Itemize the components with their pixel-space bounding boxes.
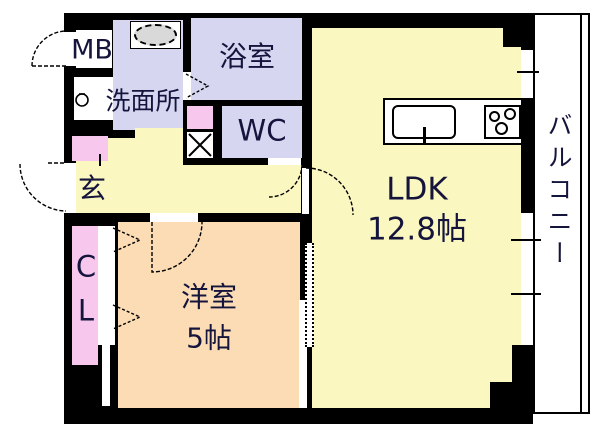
- balcony-rail-line: [580, 15, 582, 412]
- yoshitsu-door-opening: [150, 213, 198, 222]
- mb-label: MB: [71, 37, 113, 64]
- closet-door-track: [98, 226, 115, 345]
- pink-cabinet: [187, 106, 213, 129]
- wc-label: WC: [238, 117, 287, 146]
- closet-label-c: C: [76, 250, 96, 284]
- stove-icon: [484, 105, 521, 139]
- senmenjo-label: 洗面所: [105, 89, 180, 114]
- entrance-door-swing-icon: [20, 163, 66, 211]
- pipe-space: [187, 132, 213, 158]
- balcony-label: バルコニー: [543, 112, 573, 312]
- yokushitsu-label: 浴室: [219, 43, 275, 71]
- closet-label-l: L: [78, 293, 94, 327]
- bath-door-opening: [183, 72, 191, 100]
- shoe-cabinet: [72, 136, 108, 161]
- burner-icon: [504, 108, 516, 120]
- burner-icon: [489, 111, 500, 122]
- yoshitsu-name: 洋室: [181, 280, 237, 313]
- ldk-name: LDK: [386, 172, 447, 208]
- ldk-corner-bottom-2: [490, 382, 533, 408]
- sliding-partition-dotted: [305, 243, 314, 347]
- closet-label: C L: [76, 246, 96, 333]
- mb-door-swing-icon: [32, 31, 66, 66]
- burner-icon: [495, 122, 508, 135]
- wash-basin-icon: [134, 24, 177, 46]
- senmenjo-doorway: [135, 128, 183, 138]
- genkan-label: 玄: [78, 175, 106, 203]
- sink-faucet-icon: [423, 127, 426, 145]
- wall-notch: [102, 345, 110, 406]
- ldk-corner-top: [503, 13, 533, 47]
- entrance-door-opening: [64, 163, 76, 213]
- window-sliding: [521, 213, 533, 345]
- ldk-label: LDK 12.8帖: [367, 170, 467, 251]
- ldk-door-leaf: [301, 167, 310, 215]
- hallway-east: [183, 165, 302, 213]
- ldk-size: 12.8帖: [367, 212, 467, 248]
- sliding-partition-line: [307, 347, 309, 408]
- window-upper: [521, 50, 533, 98]
- wc-door-opening: [268, 158, 301, 165]
- yoshitsu-label: 洋室 5帖: [181, 277, 237, 358]
- yoshitsu-size: 5帖: [186, 321, 232, 354]
- floor-plan: MB 洗面所 浴室 WC 玄 C L 洋室 5帖 LDK 12.8帖 バルコニー: [0, 0, 600, 426]
